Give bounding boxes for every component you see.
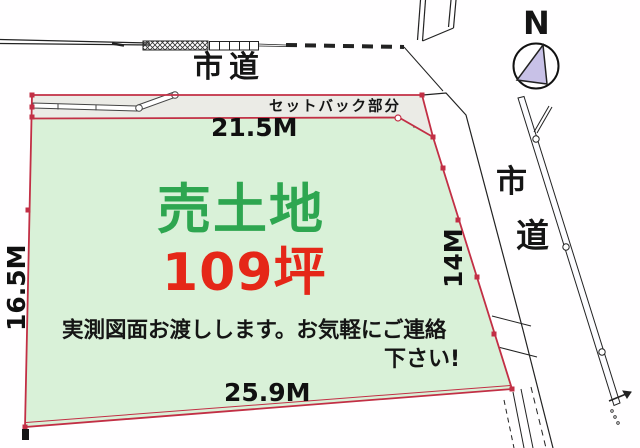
dimension-top: 21.5M [211, 115, 298, 140]
right-road-label-char1: 市 [496, 167, 527, 198]
intersection-lines [404, 0, 456, 91]
right-road-label-char2: 道 [516, 219, 549, 252]
dimension-bottom: 25.9M [224, 380, 311, 405]
dimension-left: 16.5M [4, 244, 29, 331]
contact-note-line2: 下さい! [384, 349, 460, 371]
dimension-right: 14M [441, 228, 466, 288]
contact-note-line1: 実測図面お渡しします。お気軽にご連絡 [62, 320, 446, 342]
compass [514, 44, 559, 89]
north-label: N [523, 7, 550, 39]
top-road-lines [0, 40, 404, 51]
area-size: 109坪 [162, 247, 327, 299]
top-road-label: 市道 [193, 53, 265, 83]
land-plot-flyer: N 市道 市 道 セットバック部分 21.5M 16.5M 14M 25.9M … [0, 0, 640, 448]
north-needle [517, 45, 547, 84]
road-dashed-wall [286, 45, 404, 47]
guardrail-hatch-section [143, 41, 208, 50]
guardrail-segment-section [210, 42, 259, 51]
sale-title: 売土地 [157, 183, 325, 237]
benchmark-marker [22, 429, 29, 440]
boundary-circle-marker [395, 115, 401, 121]
